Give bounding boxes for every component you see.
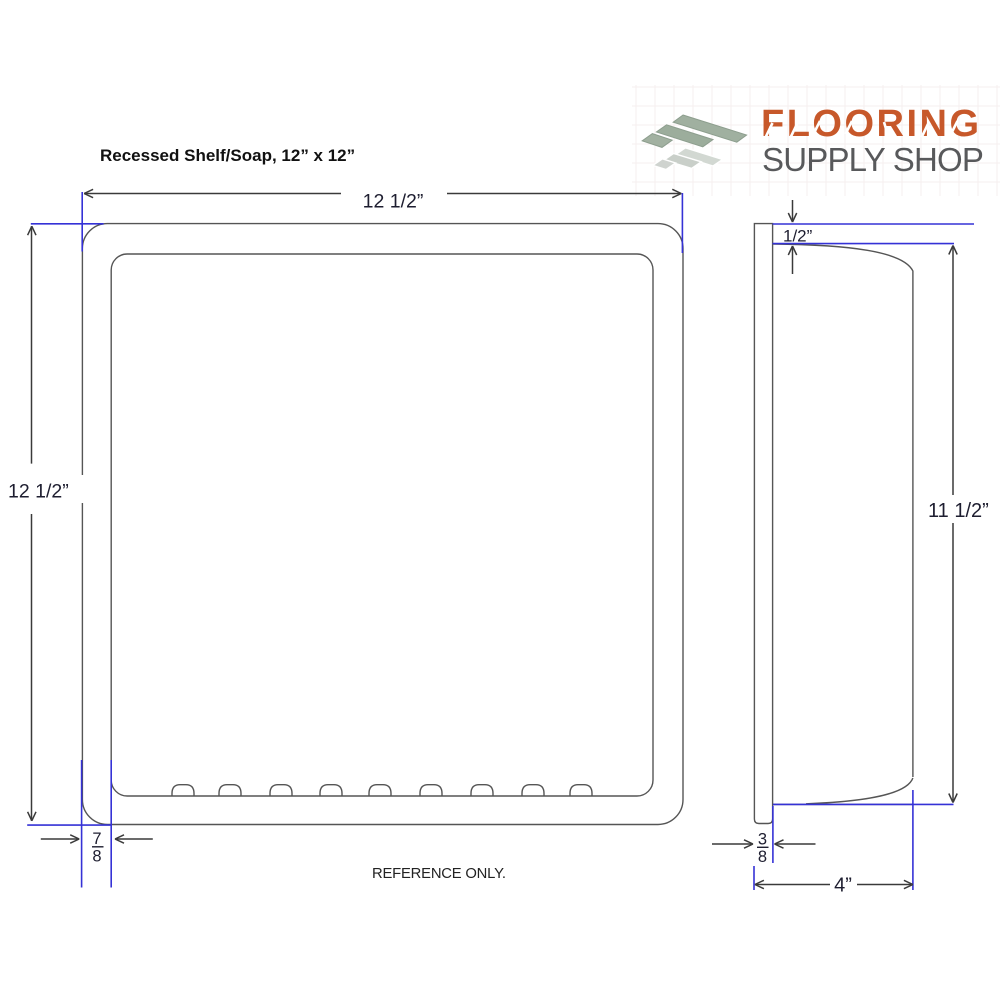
svg-text:8: 8 <box>92 848 101 866</box>
svg-text:FLOORING: FLOORING <box>761 103 982 145</box>
svg-text:8: 8 <box>758 848 767 866</box>
svg-text:REFERENCE ONLY.: REFERENCE ONLY. <box>372 866 506 882</box>
svg-text:4”: 4” <box>834 875 852 897</box>
svg-text:11 1/2”: 11 1/2” <box>928 500 989 522</box>
svg-text:SUPPLY SHOP: SUPPLY SHOP <box>762 141 983 178</box>
svg-text:Recessed Shelf/Soap, 12” x 12”: Recessed Shelf/Soap, 12” x 12” <box>100 146 355 165</box>
svg-text:12 1/2”: 12 1/2” <box>363 191 424 213</box>
svg-text:1/2”: 1/2” <box>783 227 813 246</box>
svg-text:12 1/2”: 12 1/2” <box>8 481 69 503</box>
svg-text:7: 7 <box>92 830 101 848</box>
svg-text:3: 3 <box>758 831 767 849</box>
